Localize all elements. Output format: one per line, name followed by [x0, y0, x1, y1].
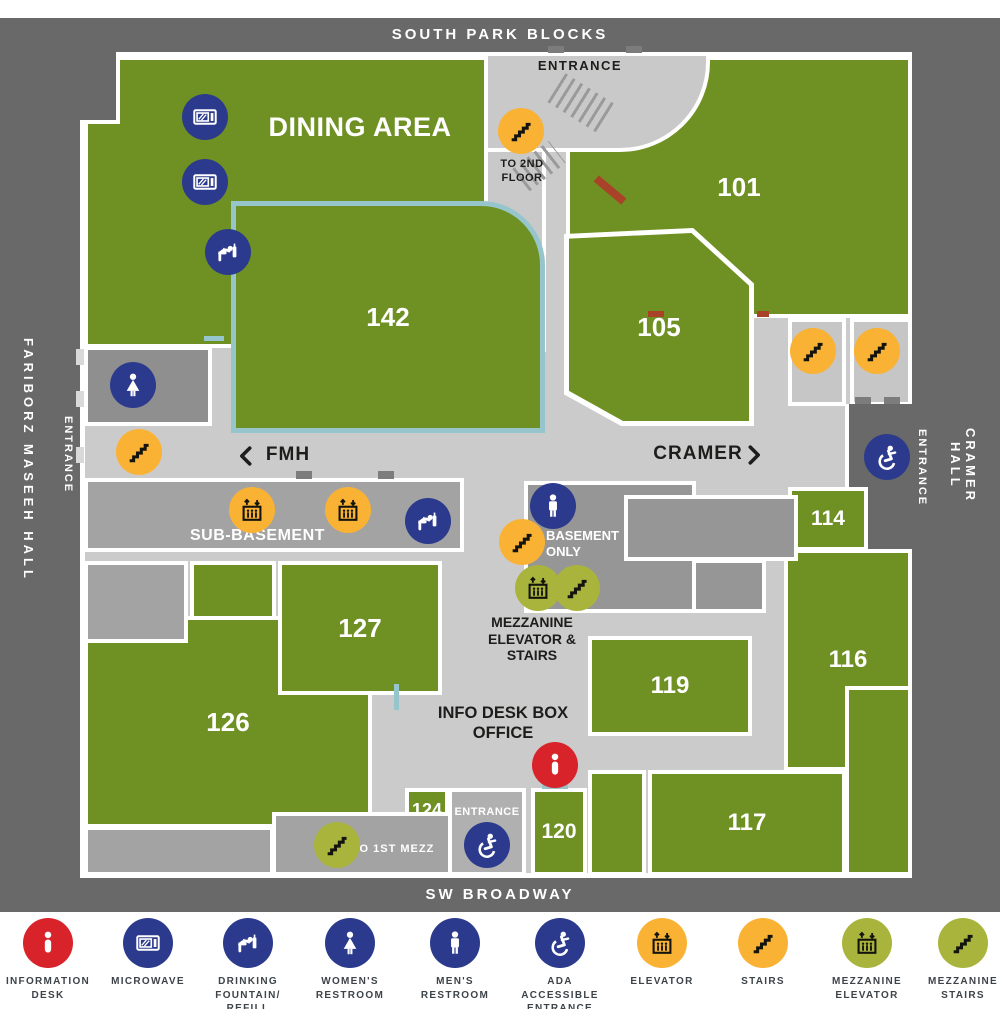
legend-item-womens-restroom: WOMEN'S RESTROOM [302, 918, 398, 1002]
mezzanine-stairs-icon [554, 565, 600, 611]
elevator-icon [637, 918, 687, 968]
legend-item-mezzanine-elevator: MEZZANINE ELEVATOR [819, 918, 915, 1002]
information-desk-icon [532, 742, 578, 788]
entrance-bottom-label: ENTRANCE [450, 806, 524, 818]
legend-item-information-desk: INFORMATION DESK [0, 918, 96, 1002]
room-105-outline: 105 [564, 228, 754, 426]
door-marker [548, 46, 564, 53]
legend-label: MEN'S RESTROOM [407, 975, 503, 1002]
room-127: 127 [278, 561, 442, 695]
room-105: 105 [569, 233, 749, 421]
street-name-top: SOUTH PARK BLOCKS [0, 26, 1000, 43]
room-120: 120 [531, 788, 587, 876]
info-desk-box-office-label: INFO DESK BOX OFFICE [428, 704, 578, 744]
chevron-right-icon [747, 445, 763, 465]
street-band-bottom: SW BROADWAY [0, 878, 1000, 912]
stairs-icon [790, 328, 836, 374]
door-accent [757, 311, 769, 317]
door-accent [648, 311, 664, 317]
legend-item-ada-accessible-entrance: ADA ACCESSIBLE ENTRANCE [512, 918, 608, 1009]
mezzanine-elevator-stairs-label: MEZZANINE ELEVATOR & STAIRS [462, 614, 602, 664]
door-marker [378, 471, 394, 479]
womens-restroom-icon [325, 918, 375, 968]
door-marker [855, 397, 871, 404]
room-117: 117 [648, 770, 846, 876]
door-marker [76, 447, 84, 463]
mezzanine-stairs-icon [314, 822, 360, 868]
ada-accessible-entrance-icon [464, 822, 510, 868]
cramer-hall-label: CRAMER HALL [952, 403, 978, 528]
legend-item-stairs: STAIRS [715, 918, 811, 989]
elevator-icon [229, 487, 275, 533]
street-name-bottom: SW BROADWAY [0, 886, 1000, 903]
mens-restroom-icon [430, 918, 480, 968]
drinking-fountain-icon [205, 229, 251, 275]
stairs-icon [499, 519, 545, 565]
legend-item-mezzanine-stairs: MEZZANINE STAIRS [915, 918, 1000, 1002]
legend-label: ELEVATOR [614, 975, 710, 989]
chevron-left-icon [238, 446, 254, 466]
entrance-right-label: ENTRANCE [906, 410, 928, 525]
stairs-icon [498, 108, 544, 154]
legend-label: DRINKING FOUNTAIN/ REFILL STATION [200, 975, 296, 1009]
to-1st-mezz-label: TO 1ST MEZZ [352, 843, 434, 855]
legend-item-mens-restroom: MEN'S RESTROOM [407, 918, 503, 1002]
information-desk-icon [23, 918, 73, 968]
legend-label: INFORMATION DESK [0, 975, 96, 1002]
microwave-icon [123, 918, 173, 968]
womens-restroom-icon [110, 362, 156, 408]
stairs-icon [854, 328, 900, 374]
legend-label: MEZZANINE ELEVATOR [819, 975, 915, 1002]
dining-area-label: DINING AREA [255, 112, 465, 143]
ada-accessible-entrance-icon [535, 918, 585, 968]
exterior-notch [80, 52, 120, 124]
microwave-icon [182, 94, 228, 140]
legend-label: ADA ACCESSIBLE ENTRANCE [512, 975, 608, 1009]
to-2nd-floor-label: TO 2ND FLOOR [486, 158, 558, 186]
room-114: 114 [788, 487, 868, 551]
mens-restroom-icon [530, 483, 576, 529]
street-band-top: SOUTH PARK BLOCKS [0, 18, 1000, 52]
elevator-icon [325, 487, 371, 533]
room-unlabeled [845, 686, 912, 876]
microwave-icon [182, 159, 228, 205]
room-126-annex [190, 561, 276, 623]
basement-stair-block [692, 559, 766, 613]
stairs-icon [116, 429, 162, 475]
basement-stair-block [624, 495, 798, 561]
basement-only-label: BASEMENT ONLY [546, 528, 626, 561]
door-marker [296, 471, 312, 479]
mezzanine-elevator-icon [842, 918, 892, 968]
cramer-direction-label: CRAMER [650, 443, 746, 465]
service-area [84, 561, 188, 643]
legend-item-elevator: ELEVATOR [614, 918, 710, 989]
room-142: 142 [231, 201, 545, 433]
drinking-fountain-icon [405, 498, 451, 544]
door-marker [76, 391, 84, 407]
entrance-left-label: ENTRANCE [52, 400, 74, 510]
stairs-icon [738, 918, 788, 968]
door-marker [76, 349, 84, 365]
legend-label: STAIRS [715, 975, 811, 989]
service-area [84, 826, 274, 876]
door-marker [626, 46, 642, 53]
floor-plan-map: SOUTH PARK BLOCKS SW BROADWAY 101 142 10… [0, 0, 1000, 1009]
mezzanine-stairs-icon [938, 918, 988, 968]
entrance-top-label: ENTRANCE [534, 58, 626, 73]
teal-accent [394, 684, 399, 710]
legend-label: MICROWAVE [100, 975, 196, 989]
ada-accessible-entrance-icon [864, 434, 910, 480]
door-marker [884, 397, 900, 404]
legend-item-drinking-fountain-refill-station: DRINKING FOUNTAIN/ REFILL STATION [200, 918, 296, 1009]
drinking-fountain-refill-station-icon [223, 918, 273, 968]
legend-item-microwave: MICROWAVE [100, 918, 196, 989]
legend-label: MEZZANINE STAIRS [915, 975, 1000, 1002]
legend-label: WOMEN'S RESTROOM [302, 975, 398, 1002]
fmh-direction-label: FMH [258, 444, 318, 466]
room-unlabeled [588, 770, 646, 876]
fariborz-maseeh-hall-label: FARIBORZ MASEEH HALL [10, 295, 36, 625]
teal-accent [204, 336, 224, 341]
legend: INFORMATION DESKMICROWAVEDRINKING FOUNTA… [0, 912, 1000, 1009]
room-119: 119 [588, 636, 752, 736]
